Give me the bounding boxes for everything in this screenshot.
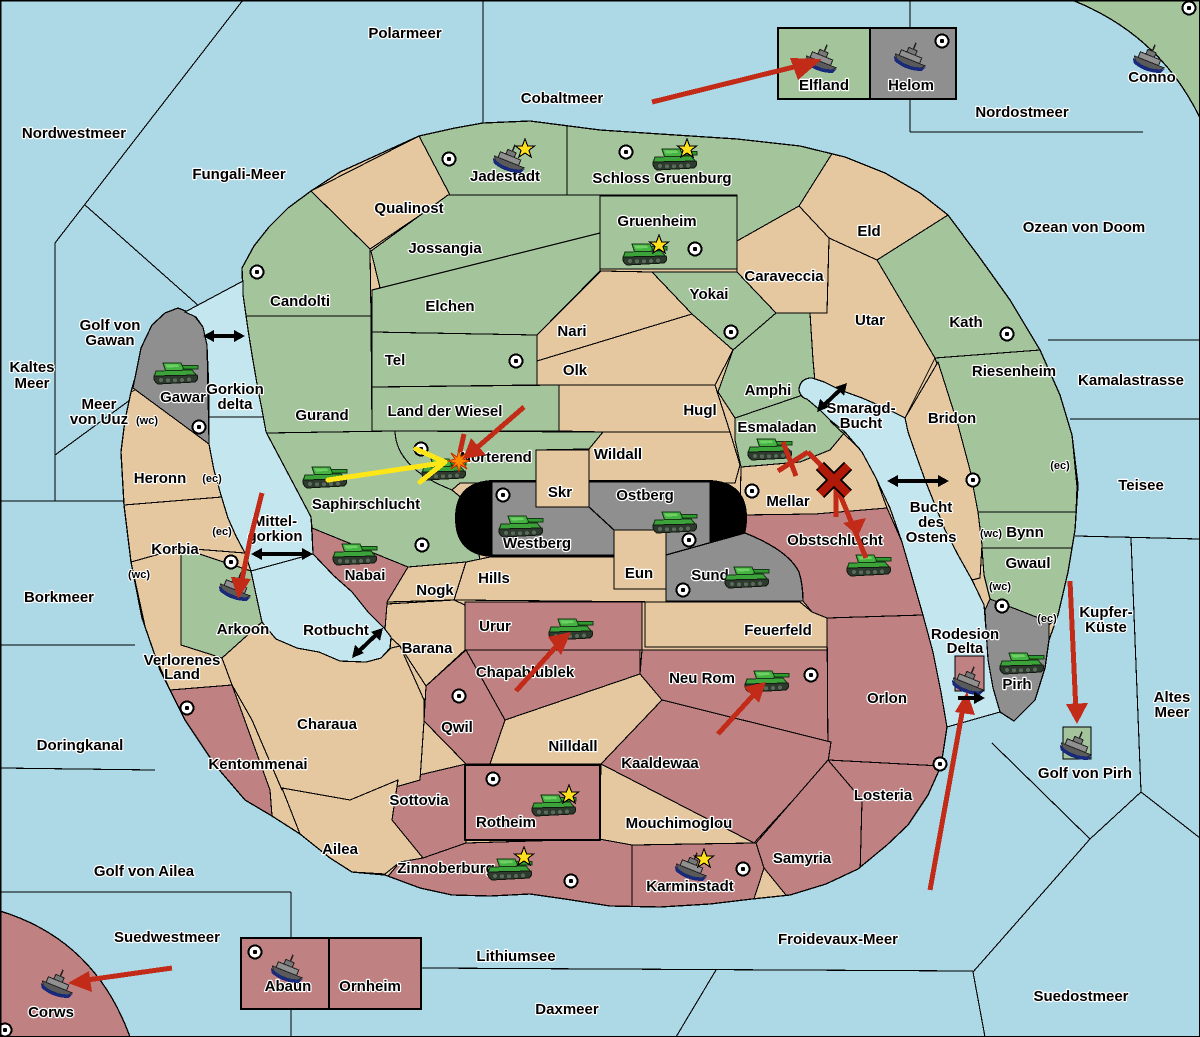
svg-text:Feuerfeld: Feuerfeld	[744, 622, 812, 639]
svg-text:Amphi: Amphi	[745, 382, 792, 399]
svg-text:Ozean von Doom: Ozean von Doom	[1023, 219, 1146, 236]
svg-text:Kaaldewaa: Kaaldewaa	[621, 755, 699, 772]
svg-text:(ec): (ec)	[212, 526, 232, 538]
svg-text:Nordwestmeer: Nordwestmeer	[22, 125, 126, 142]
svg-text:(wc): (wc)	[136, 415, 158, 427]
svg-text:gorkion: gorkion	[248, 528, 303, 545]
svg-text:Charaua: Charaua	[297, 716, 358, 733]
svg-text:Suedostmeer: Suedostmeer	[1033, 988, 1128, 1005]
svg-text:Gawar: Gawar	[160, 389, 206, 406]
svg-text:Zinnoberburg: Zinnoberburg	[397, 860, 495, 877]
svg-text:Eld: Eld	[857, 223, 880, 240]
svg-text:Jadestadt: Jadestadt	[470, 168, 540, 185]
svg-text:Utar: Utar	[855, 312, 885, 329]
svg-text:Nogk: Nogk	[416, 582, 454, 599]
svg-text:Lithiumsee: Lithiumsee	[476, 948, 555, 965]
svg-text:Ostens: Ostens	[906, 529, 957, 546]
svg-text:Gruenheim: Gruenheim	[617, 213, 696, 230]
svg-text:Nordostmeer: Nordostmeer	[975, 104, 1069, 121]
svg-text:Polarmeer: Polarmeer	[368, 25, 442, 42]
svg-text:Elfland: Elfland	[799, 77, 849, 94]
svg-text:(wc): (wc)	[989, 581, 1011, 593]
svg-text:Pirh: Pirh	[1002, 676, 1031, 693]
svg-text:(ec): (ec)	[202, 473, 222, 485]
svg-text:Gwaul: Gwaul	[1005, 555, 1050, 572]
svg-text:Candolti: Candolti	[270, 293, 330, 310]
svg-text:Corws: Corws	[28, 1004, 74, 1021]
svg-text:Cobaltmeer: Cobaltmeer	[521, 90, 604, 107]
svg-text:Qualinost: Qualinost	[374, 200, 443, 217]
svg-text:Jossangia: Jossangia	[408, 240, 482, 257]
svg-text:Caraveccia: Caraveccia	[744, 268, 824, 285]
svg-text:Land der Wiesel: Land der Wiesel	[388, 403, 503, 420]
svg-text:Meer: Meer	[14, 375, 49, 392]
svg-text:Karminstadt: Karminstadt	[646, 878, 734, 895]
svg-text:Riesenheim: Riesenheim	[972, 363, 1056, 380]
svg-text:Suedwestmeer: Suedwestmeer	[114, 929, 220, 946]
svg-text:Schloss Gruenburg: Schloss Gruenburg	[592, 170, 731, 187]
svg-text:Ailea: Ailea	[322, 841, 359, 858]
svg-text:Ostberg: Ostberg	[616, 487, 674, 504]
svg-text:Tel: Tel	[385, 352, 406, 369]
svg-text:Korbia: Korbia	[151, 541, 199, 558]
svg-text:Rotbucht: Rotbucht	[303, 622, 369, 639]
svg-text:Westberg: Westberg	[503, 535, 571, 552]
svg-text:Rotheim: Rotheim	[476, 814, 536, 831]
svg-text:(wc): (wc)	[128, 569, 150, 581]
svg-text:Wildall: Wildall	[594, 446, 642, 463]
svg-text:Neu Rom: Neu Rom	[669, 670, 735, 687]
svg-text:Yokai: Yokai	[690, 286, 729, 303]
svg-text:(ec): (ec)	[1050, 460, 1070, 472]
svg-text:Fungali-Meer: Fungali-Meer	[192, 166, 286, 183]
svg-text:Teisee: Teisee	[1118, 477, 1164, 494]
svg-text:Mellar: Mellar	[766, 493, 810, 510]
svg-text:Sund: Sund	[691, 567, 729, 584]
svg-text:Elchen: Elchen	[425, 298, 474, 315]
svg-text:Heronn: Heronn	[134, 470, 187, 487]
svg-text:Losteria: Losteria	[854, 787, 913, 804]
svg-text:Helom: Helom	[888, 77, 934, 94]
svg-text:Ornheim: Ornheim	[339, 978, 401, 995]
svg-text:Bynn: Bynn	[1006, 524, 1044, 541]
svg-text:(wc): (wc)	[980, 528, 1002, 540]
svg-text:Olk: Olk	[563, 362, 588, 379]
svg-text:Golf von Pirh: Golf von Pirh	[1038, 765, 1132, 782]
svg-text:Hills: Hills	[478, 570, 510, 587]
svg-text:Saphirschlucht: Saphirschlucht	[312, 496, 420, 513]
svg-text:Kaltes: Kaltes	[9, 359, 54, 376]
svg-text:Esmaladan: Esmaladan	[737, 419, 816, 436]
svg-text:Golf von Ailea: Golf von Ailea	[94, 863, 195, 880]
svg-text:Gawan: Gawan	[85, 332, 134, 349]
svg-text:Obstschlucht: Obstschlucht	[787, 532, 883, 549]
svg-text:Daxmeer: Daxmeer	[535, 1001, 599, 1018]
svg-text:Eun: Eun	[625, 565, 653, 582]
svg-text:Hugl: Hugl	[683, 402, 716, 419]
svg-text:Doringkanal: Doringkanal	[37, 737, 124, 754]
svg-text:Nabai: Nabai	[345, 567, 386, 584]
svg-text:Bucht: Bucht	[840, 415, 883, 432]
svg-text:von Uuz: von Uuz	[70, 411, 128, 428]
svg-text:Skr: Skr	[548, 484, 572, 501]
svg-text:Qwil: Qwil	[441, 719, 473, 736]
svg-text:Froidevaux-Meer: Froidevaux-Meer	[778, 931, 898, 948]
svg-text:Delta: Delta	[947, 640, 984, 657]
svg-text:Barana: Barana	[402, 640, 454, 657]
svg-text:Küste: Küste	[1085, 619, 1127, 636]
svg-text:Nilldall: Nilldall	[548, 738, 597, 755]
svg-text:delta: delta	[217, 396, 253, 413]
svg-text:Gurand: Gurand	[295, 407, 348, 424]
svg-text:Arkoon: Arkoon	[217, 621, 270, 638]
svg-text:Kath: Kath	[949, 314, 982, 331]
svg-text:Kentommenai: Kentommenai	[208, 756, 307, 773]
svg-text:Bridon: Bridon	[928, 410, 976, 427]
svg-text:Kamalastrasse: Kamalastrasse	[1078, 372, 1184, 389]
svg-text:(ec): (ec)	[1037, 613, 1057, 625]
svg-text:Meer: Meer	[1154, 704, 1189, 721]
svg-text:Orlon: Orlon	[867, 690, 907, 707]
svg-text:Land: Land	[164, 666, 200, 683]
svg-text:Samyria: Samyria	[773, 850, 832, 867]
svg-text:Borkmeer: Borkmeer	[24, 589, 94, 606]
svg-text:Urur: Urur	[479, 618, 511, 635]
svg-text:Nari: Nari	[557, 323, 586, 340]
svg-text:Mouchimoglou: Mouchimoglou	[626, 815, 733, 832]
svg-text:Sottovia: Sottovia	[389, 792, 449, 809]
